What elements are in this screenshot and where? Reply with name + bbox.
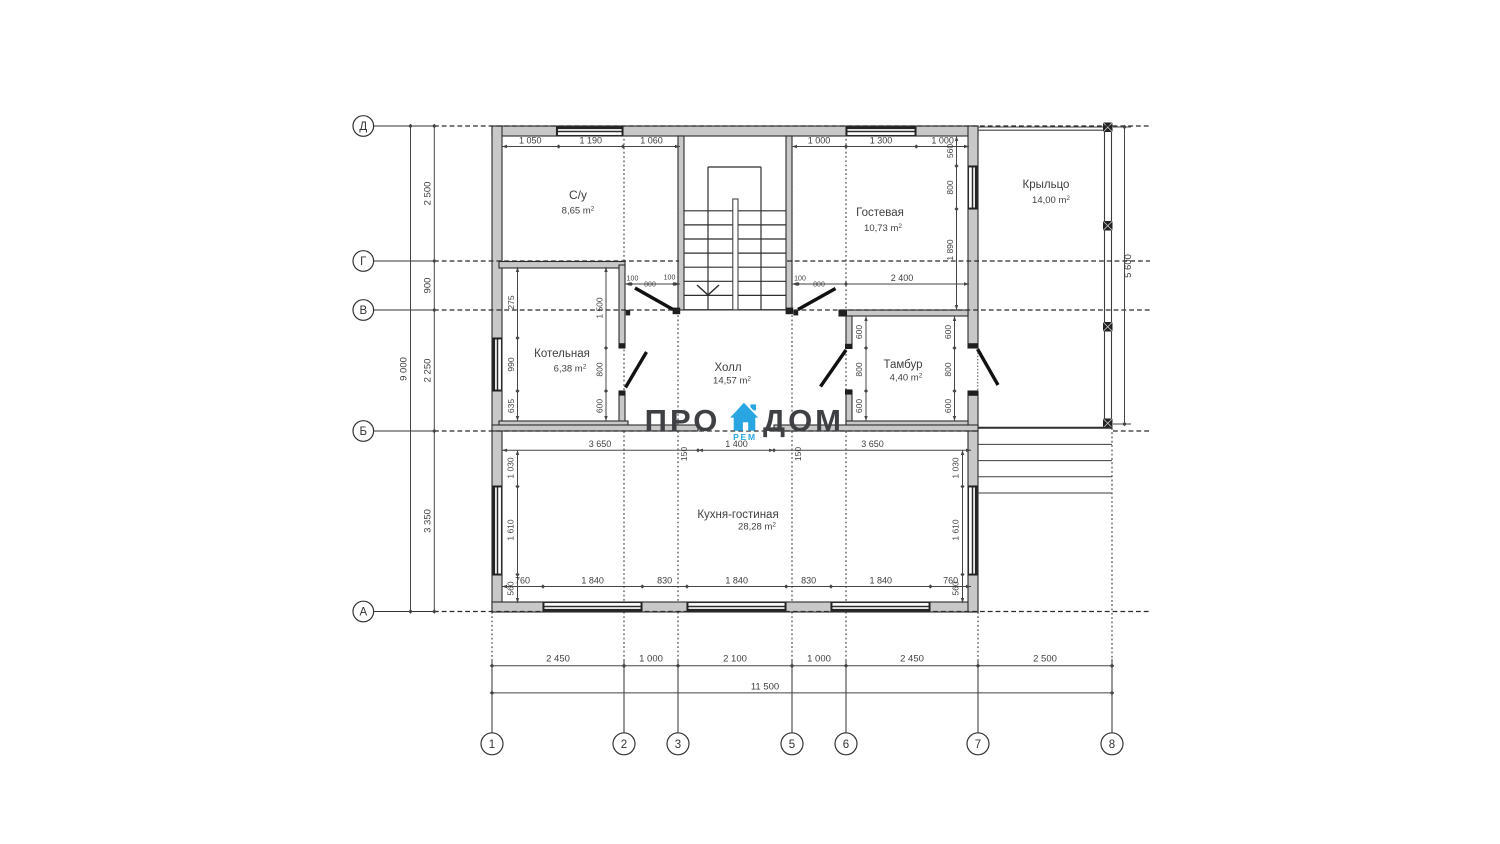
svg-text:1 050: 1 050 [519,136,542,146]
svg-text:800: 800 [813,282,825,289]
svg-text:Д: Д [359,121,367,133]
svg-text:5 600: 5 600 [1123,254,1134,278]
svg-text:800: 800 [644,282,656,289]
svg-text:С/у: С/у [569,188,587,202]
svg-text:1 890: 1 890 [945,239,955,261]
svg-text:2 500: 2 500 [423,182,434,206]
svg-text:2 400: 2 400 [891,273,914,283]
svg-text:В: В [359,305,367,317]
svg-text:9 000: 9 000 [399,357,410,381]
svg-text:Тамбур: Тамбур [883,359,922,371]
svg-text:3: 3 [675,739,681,751]
svg-text:760: 760 [943,576,958,586]
svg-text:100: 100 [794,276,806,283]
svg-text:3 350: 3 350 [423,509,434,533]
svg-text:Холл: Холл [714,362,741,374]
svg-text:3 650: 3 650 [861,439,884,449]
svg-text:560: 560 [945,144,955,158]
svg-text:1 500: 1 500 [595,297,605,319]
svg-text:635: 635 [506,399,516,413]
svg-text:2 100: 2 100 [723,654,747,665]
svg-text:1 060: 1 060 [640,136,663,146]
svg-text:Крыльцо: Крыльцо [1023,179,1070,191]
svg-text:800: 800 [945,180,955,194]
svg-text:1 190: 1 190 [580,136,603,146]
svg-text:4,40 m2: 4,40 m2 [890,373,923,384]
svg-text:ПРО: ПРО [645,403,721,438]
svg-text:150: 150 [679,447,689,461]
svg-text:1 840: 1 840 [870,576,893,586]
svg-text:600: 600 [943,325,953,339]
svg-text:275: 275 [506,295,516,309]
svg-text:Кухня-гостиная: Кухня-гостиная [697,509,778,521]
svg-text:600: 600 [595,399,605,413]
svg-text:10,73 m2: 10,73 m2 [864,223,902,234]
svg-text:Гостевая: Гостевая [856,207,904,219]
svg-text:А: А [359,607,367,619]
svg-text:2 500: 2 500 [1033,654,1057,665]
svg-text:1 840: 1 840 [581,576,604,586]
svg-text:1 610: 1 610 [506,519,516,541]
svg-text:2: 2 [621,739,627,751]
svg-text:1 610: 1 610 [951,519,961,541]
svg-text:1 000: 1 000 [807,654,831,665]
svg-text:1: 1 [489,739,495,751]
svg-text:3 650: 3 650 [589,439,612,449]
svg-text:14,00 m2: 14,00 m2 [1032,195,1070,206]
svg-text:800: 800 [943,362,953,376]
svg-text:ДОМ: ДОМ [763,403,844,438]
svg-text:800: 800 [595,362,605,376]
svg-text:РЕМ: РЕМ [733,432,757,442]
svg-text:1 840: 1 840 [725,576,748,586]
svg-text:2 250: 2 250 [423,359,434,383]
svg-text:1 030: 1 030 [506,457,516,479]
svg-text:Котельная: Котельная [534,348,590,360]
svg-text:1 000: 1 000 [808,136,831,146]
svg-text:800: 800 [854,362,864,376]
svg-text:600: 600 [854,399,864,413]
svg-text:1 030: 1 030 [951,457,961,479]
svg-text:990: 990 [506,357,516,371]
svg-text:600: 600 [854,325,864,339]
svg-text:900: 900 [423,278,434,294]
svg-text:830: 830 [801,576,816,586]
svg-text:100: 100 [664,275,676,282]
svg-text:2 450: 2 450 [546,654,570,665]
svg-text:6,38 m2: 6,38 m2 [554,364,587,375]
svg-text:1 300: 1 300 [870,136,893,146]
svg-text:Г: Г [360,256,367,268]
svg-text:28,28 m2: 28,28 m2 [738,522,776,533]
svg-text:Б: Б [360,426,368,438]
svg-text:11 500: 11 500 [751,682,779,693]
svg-text:6: 6 [843,739,849,751]
svg-text:8,65 m2: 8,65 m2 [562,206,595,217]
svg-text:830: 830 [657,576,672,586]
svg-text:7: 7 [975,739,981,751]
svg-text:8: 8 [1109,739,1115,751]
svg-text:600: 600 [943,399,953,413]
svg-text:14,57 m2: 14,57 m2 [713,376,751,387]
svg-text:100: 100 [627,276,639,283]
svg-text:760: 760 [515,576,530,586]
svg-text:150: 150 [793,447,803,461]
svg-text:2 450: 2 450 [900,654,924,665]
svg-text:5: 5 [789,739,795,751]
svg-text:1 000: 1 000 [639,654,663,665]
